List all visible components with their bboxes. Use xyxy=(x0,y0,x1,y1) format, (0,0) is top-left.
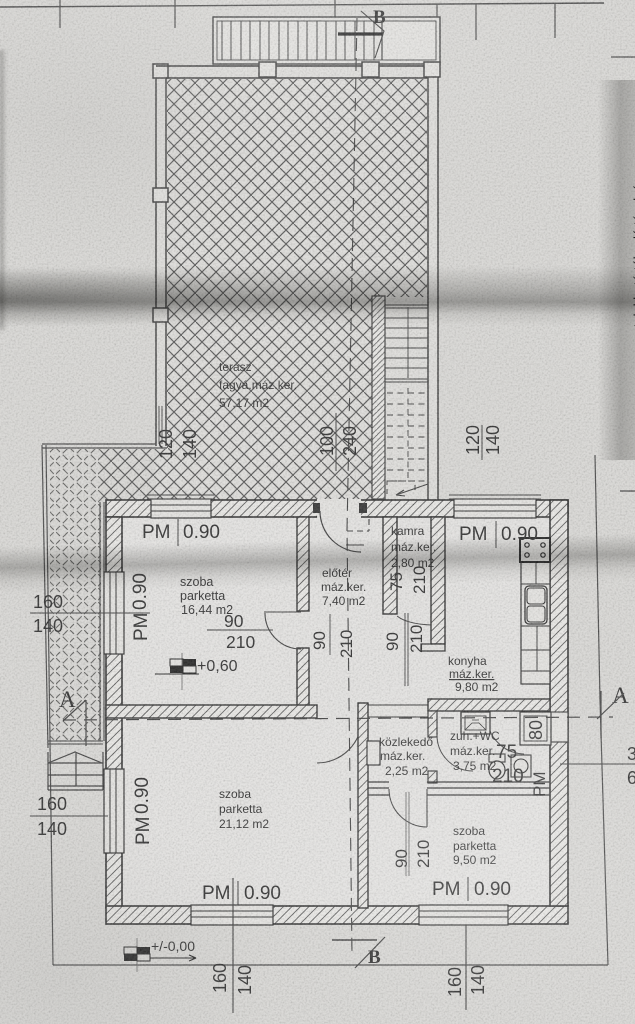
svg-text:a telekhatártól való távolság: a telekhatártól való távolság xyxy=(631,177,635,338)
